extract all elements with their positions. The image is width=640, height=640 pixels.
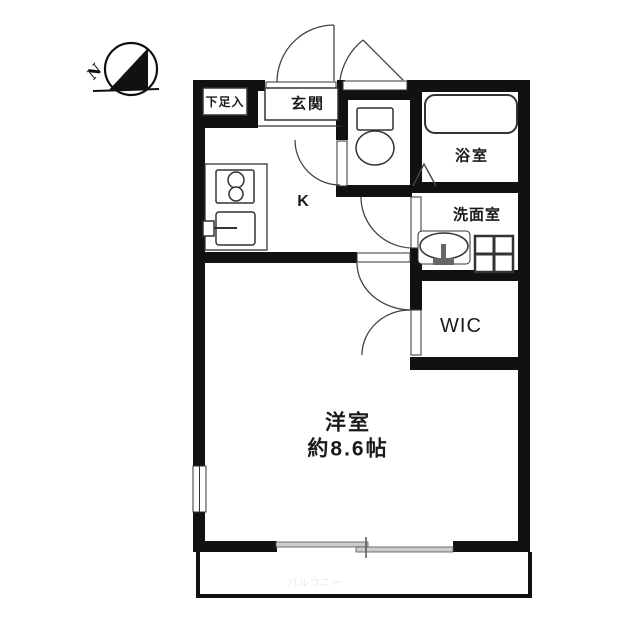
- toilet-north-door-leaf: [363, 40, 403, 80]
- toilet-doorway: [337, 141, 347, 186]
- label-wic: WIC: [440, 316, 482, 336]
- balcony-wall-right: [528, 552, 532, 597]
- floorplan-page: N 下足入 玄関 浴室 洗面室 K WIC 洋室 約8.6帖 バルコニー: [0, 0, 640, 640]
- stove-burner-top-icon: [228, 172, 244, 188]
- label-entrance: 玄関: [291, 97, 325, 112]
- wall-bath-washroom: [410, 182, 530, 193]
- washroom-door-arc: [361, 197, 413, 248]
- wall-kitchen-bottom: [193, 252, 357, 263]
- basin-faucet-base-icon: [433, 258, 454, 265]
- wic-door-arc: [362, 310, 410, 355]
- wall-bottom-left: [193, 541, 277, 552]
- basin-faucet-stem-icon: [441, 244, 446, 260]
- wall-top-right: [407, 80, 530, 92]
- toilet-door-arc: [295, 140, 340, 185]
- wall-toilet-top: [343, 90, 410, 100]
- sliding-door: [276, 537, 453, 558]
- bathtub-icon: [425, 95, 517, 133]
- wall-wic-bottom: [410, 357, 530, 370]
- wall-wic-west: [410, 281, 422, 310]
- kitchen-faucet-base-icon: [203, 221, 214, 236]
- label-bathroom: 浴室: [455, 149, 489, 164]
- wall-bottom-right: [453, 541, 530, 552]
- label-washroom: 洗面室: [453, 208, 501, 223]
- wall-shoebox-bottom: [205, 114, 258, 128]
- label-main-room-name: 洋室: [325, 413, 371, 434]
- main-room-door-arc: [357, 263, 412, 310]
- sliding-panel-left: [276, 542, 368, 547]
- balcony-wall-left: [196, 552, 200, 597]
- entrance-door-arc: [277, 25, 334, 82]
- label-main-room-size: 約8.6帖: [307, 439, 388, 460]
- balcony-wall-bottom: [196, 594, 532, 598]
- wall-toilet-bottom: [336, 185, 412, 197]
- wall-right: [518, 80, 530, 552]
- toilet-north-door-arc: [340, 40, 363, 80]
- toilet-north-threshold: [343, 81, 407, 90]
- main-room-doorway: [357, 253, 410, 262]
- label-kitchen: K: [297, 194, 309, 210]
- toilet-bowl-icon: [356, 131, 394, 165]
- wic-doorway: [411, 310, 421, 355]
- sliding-panel-right: [356, 547, 453, 552]
- stove-burner-bottom-icon: [229, 187, 243, 201]
- label-shoe-storage: 下足入: [205, 96, 244, 108]
- balcony-outline: [196, 552, 532, 598]
- wall-genkan-stub: [247, 80, 258, 117]
- toilet-tank-icon: [357, 108, 393, 130]
- wall-left-upper: [193, 80, 205, 466]
- wall-toilet-bath-divider: [410, 80, 422, 193]
- label-balcony: バルコニー: [288, 579, 343, 589]
